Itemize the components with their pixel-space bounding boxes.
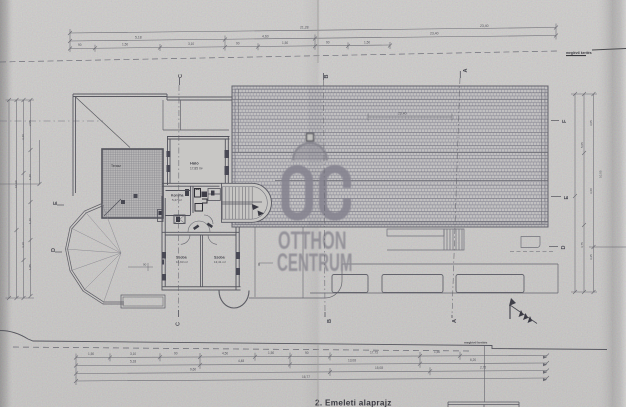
svg-text:A: A — [463, 69, 469, 73]
svg-text:23,40: 23,40 — [430, 32, 439, 36]
svg-text:B: B — [327, 319, 333, 323]
svg-text:4,60: 4,60 — [262, 35, 269, 39]
svg-text:Terasz: Terasz — [111, 164, 121, 168]
svg-text:2,75: 2,75 — [480, 365, 486, 369]
svg-text:1,85: 1,85 — [28, 264, 32, 270]
svg-text:C: C — [176, 322, 182, 326]
svg-text:5,27 m²: 5,27 m² — [172, 198, 182, 202]
svg-text:3,40: 3,40 — [21, 134, 25, 140]
svg-text:90: 90 — [305, 351, 309, 355]
svg-text:3,60: 3,60 — [589, 188, 593, 194]
svg-text:90: 90 — [143, 263, 147, 267]
svg-text:17,75: 17,75 — [370, 351, 378, 355]
svg-text:C: C — [178, 74, 184, 78]
svg-text:1,50: 1,50 — [364, 40, 370, 44]
svg-text:15,08: 15,08 — [375, 366, 383, 370]
svg-text:1,50: 1,50 — [88, 352, 94, 356]
svg-text:17,85 m²: 17,85 m² — [190, 167, 203, 171]
svg-text:E: E — [53, 201, 59, 205]
svg-text:4,48: 4,48 — [238, 359, 244, 363]
svg-text:9,60: 9,60 — [190, 368, 196, 372]
svg-text:meglévő kerítés: meglévő kerítés — [566, 51, 592, 55]
svg-text:4,10: 4,10 — [21, 242, 25, 248]
svg-text:2,55: 2,55 — [28, 120, 32, 126]
svg-text:3,10: 3,10 — [130, 352, 136, 356]
svg-text:E: E — [564, 196, 570, 200]
svg-text:4,75: 4,75 — [580, 242, 584, 248]
svg-text:16,63 m²: 16,63 m² — [176, 260, 188, 264]
svg-text:23,40: 23,40 — [480, 24, 489, 28]
svg-text:Szoba: Szoba — [176, 256, 188, 260]
svg-text:23,40: 23,40 — [398, 112, 407, 116]
svg-text:1,40: 1,40 — [28, 174, 32, 180]
svg-text:1,50: 1,50 — [434, 350, 440, 354]
svg-text:3,10: 3,10 — [188, 42, 194, 46]
svg-text:2. Emeleti alaprajz: 2. Emeleti alaprajz — [315, 399, 392, 407]
svg-text:90: 90 — [257, 262, 261, 266]
svg-text:Szoba: Szoba — [214, 256, 226, 260]
svg-text:1,50: 1,50 — [282, 41, 288, 45]
svg-text:5,05: 5,05 — [580, 142, 584, 148]
svg-text:90: 90 — [174, 352, 178, 356]
svg-text:5,18: 5,18 — [130, 360, 136, 364]
svg-text:1,50: 1,50 — [122, 43, 128, 47]
svg-text:13,08: 13,08 — [348, 359, 356, 363]
svg-text:4,50: 4,50 — [222, 351, 228, 355]
svg-text:1,50: 1,50 — [268, 351, 274, 355]
svg-text:90: 90 — [326, 41, 330, 45]
svg-text:90: 90 — [78, 43, 82, 47]
svg-text:13,41 m²: 13,41 m² — [214, 260, 226, 264]
svg-text:3,25: 3,25 — [589, 254, 593, 260]
svg-text:CENTRUM: CENTRUM — [277, 249, 352, 277]
svg-text:10,05: 10,05 — [599, 170, 603, 178]
svg-text:D: D — [561, 246, 567, 250]
svg-text:meglévő kerítés: meglévő kerítés — [464, 341, 488, 345]
svg-text:21,28: 21,28 — [300, 26, 309, 30]
svg-text:5,18: 5,18 — [135, 36, 142, 40]
svg-text:D: D — [51, 248, 57, 252]
svg-text:1,40: 1,40 — [28, 218, 32, 224]
svg-text:A: A — [452, 319, 458, 323]
svg-text:6,20: 6,20 — [470, 358, 476, 362]
svg-text:90: 90 — [236, 42, 240, 46]
svg-text:16,77: 16,77 — [302, 375, 310, 379]
svg-text:B: B — [324, 75, 330, 79]
svg-text:3,05: 3,05 — [589, 120, 593, 126]
svg-text:10,90: 10,90 — [14, 180, 18, 188]
svg-text:Háló: Háló — [190, 161, 199, 166]
